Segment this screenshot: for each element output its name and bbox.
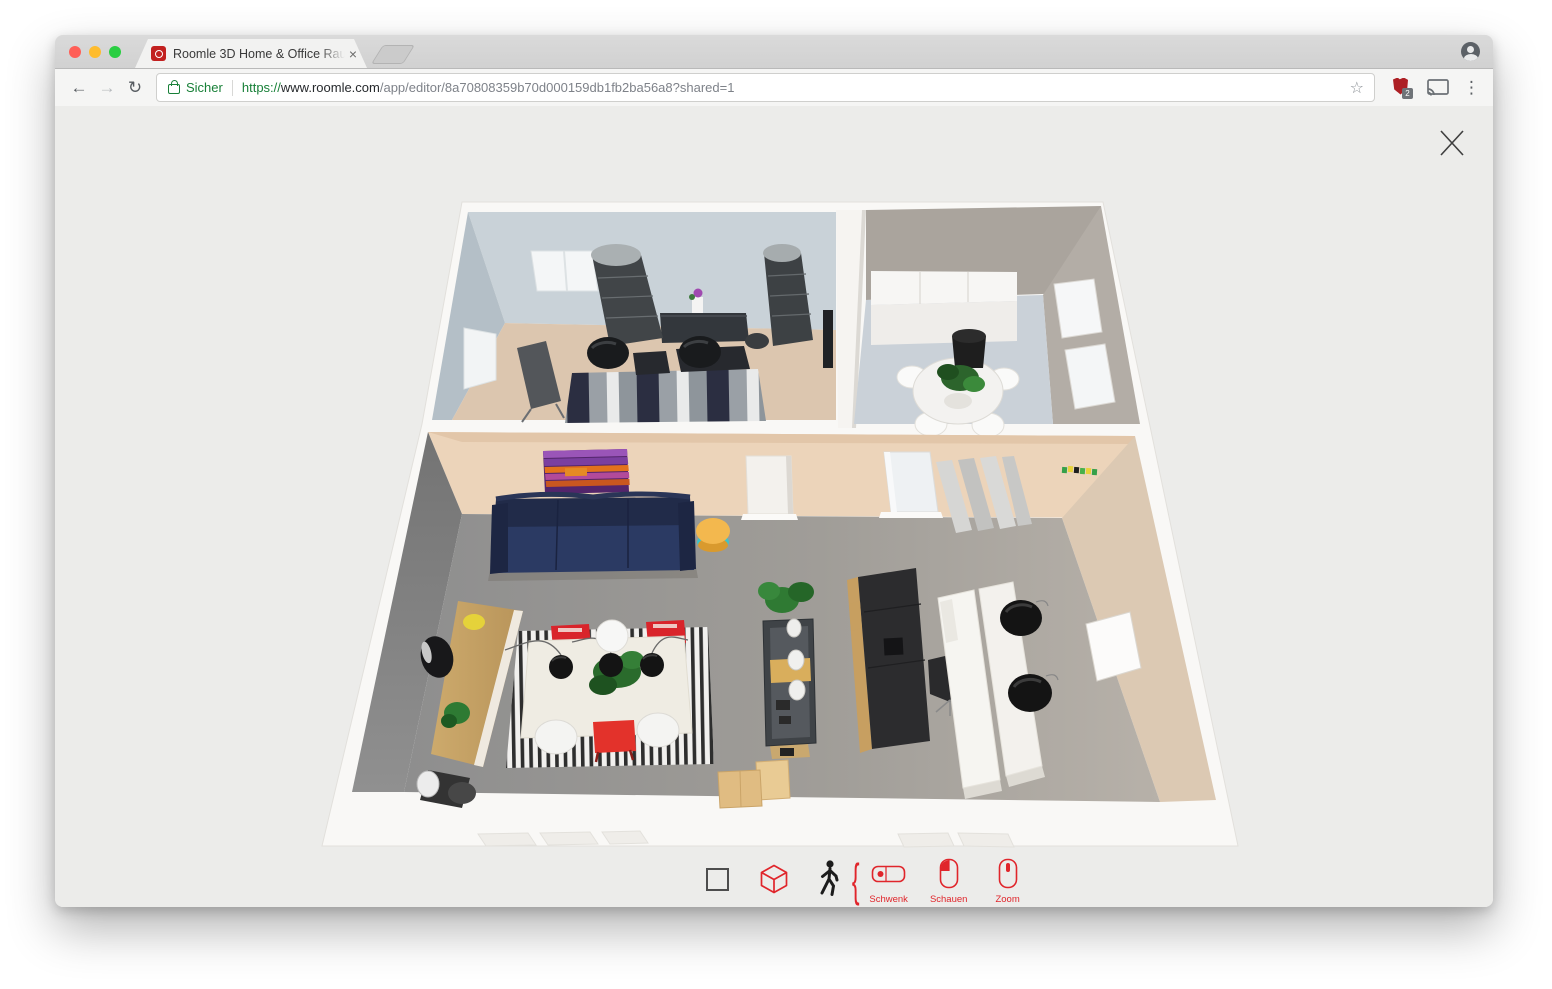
hint-pan: Schwenk: [869, 858, 908, 905]
mouse-look-icon: [939, 858, 959, 889]
window-zoom-button[interactable]: [109, 46, 121, 58]
black-kitchen-island[interactable]: [847, 568, 930, 753]
room-meeting[interactable]: [854, 206, 1140, 437]
forward-button[interactable]: →: [94, 75, 120, 101]
browser-window: Roomle 3D Home & Office Rau × ← → ↻ Sich…: [55, 35, 1493, 907]
square-2d-icon: [706, 868, 729, 891]
office-wall-window: [464, 328, 496, 389]
cast-icon[interactable]: [1427, 79, 1449, 96]
hint-pan-label: Schwenk: [869, 894, 908, 905]
extension-badge: 2: [1402, 88, 1413, 99]
traffic-lights: [69, 46, 121, 58]
office-swivel-chair[interactable]: [679, 336, 721, 368]
profile-icon[interactable]: [1461, 42, 1480, 61]
viewer-toolbar: { Schwenk Schauen: [706, 858, 1020, 905]
room-office[interactable]: [432, 212, 836, 423]
secure-lock-icon: [168, 84, 180, 94]
hint-zoom: Zoom: [995, 858, 1019, 905]
chrome-menu-icon[interactable]: ⋮: [1463, 78, 1480, 98]
hint-look-label: Schauen: [930, 894, 968, 905]
view-3d-button[interactable]: [760, 864, 788, 894]
address-separator: [232, 80, 233, 96]
walking-person-icon: [818, 860, 840, 898]
navigation-toolbar: ← → ↻ Sicher https://www.roomle.com/app/…: [55, 69, 1493, 107]
window-minimize-button[interactable]: [89, 46, 101, 58]
office-dark-door: [823, 310, 833, 368]
extension-icon[interactable]: 2: [1391, 77, 1413, 99]
floorplan-3d-view[interactable]: [55, 106, 1493, 907]
mouse-pan-icon: [871, 864, 907, 884]
white-chair[interactable]: [535, 720, 577, 754]
window-close-button[interactable]: [69, 46, 81, 58]
url-host: www.roomle.com: [281, 80, 380, 95]
white-chair[interactable]: [637, 713, 679, 747]
white-door: [741, 456, 798, 520]
white-pendant-lamp: [596, 620, 628, 652]
office-striped-rug[interactable]: [565, 369, 766, 423]
url-scheme: https://: [242, 80, 281, 95]
address-bar[interactable]: Sicher https://www.roomle.com/app/editor…: [156, 73, 1375, 102]
hint-look: Schauen: [930, 858, 968, 905]
new-tab-button[interactable]: [371, 45, 415, 64]
yellow-lamp: [463, 614, 485, 630]
room-living-work[interactable]: [352, 432, 1216, 808]
meeting-white-sideboard[interactable]: [871, 271, 1017, 345]
reload-button[interactable]: ↻: [122, 75, 148, 101]
tab-close-icon[interactable]: ×: [349, 47, 357, 61]
tab-title-fade: [319, 39, 345, 68]
office-desk[interactable]: [633, 351, 670, 375]
view-2d-button[interactable]: [706, 858, 729, 891]
hint-zoom-label: Zoom: [995, 894, 1019, 905]
url-path: /app/editor/8a70808359b70d000159db1fb2ba…: [380, 80, 735, 95]
walkthrough-button[interactable]: [818, 860, 840, 898]
tab-strip: Roomle 3D Home & Office Rau ×: [55, 35, 1493, 69]
navy-sofa[interactable]: [488, 494, 698, 581]
secure-label: Sicher: [186, 80, 223, 95]
back-button[interactable]: ←: [66, 75, 92, 101]
mouse-zoom-icon: [998, 858, 1018, 889]
browser-tab[interactable]: Roomle 3D Home & Office Rau ×: [135, 39, 367, 68]
cube-3d-icon: [760, 864, 788, 894]
brace-glyph: {: [852, 858, 860, 902]
abstract-painting[interactable]: [543, 449, 630, 494]
roomle-editor-page: { Schwenk Schauen: [55, 106, 1493, 907]
bookmark-star-icon[interactable]: ☆: [1342, 78, 1364, 98]
page-url: https://www.roomle.com/app/editor/8a7080…: [242, 80, 735, 95]
office-swivel-chair[interactable]: [587, 337, 629, 369]
dining-area[interactable]: [505, 620, 714, 768]
roomle-favicon: [151, 46, 166, 61]
yellow-pouf[interactable]: [696, 518, 730, 552]
meeting-wall-window: [1054, 279, 1102, 338]
